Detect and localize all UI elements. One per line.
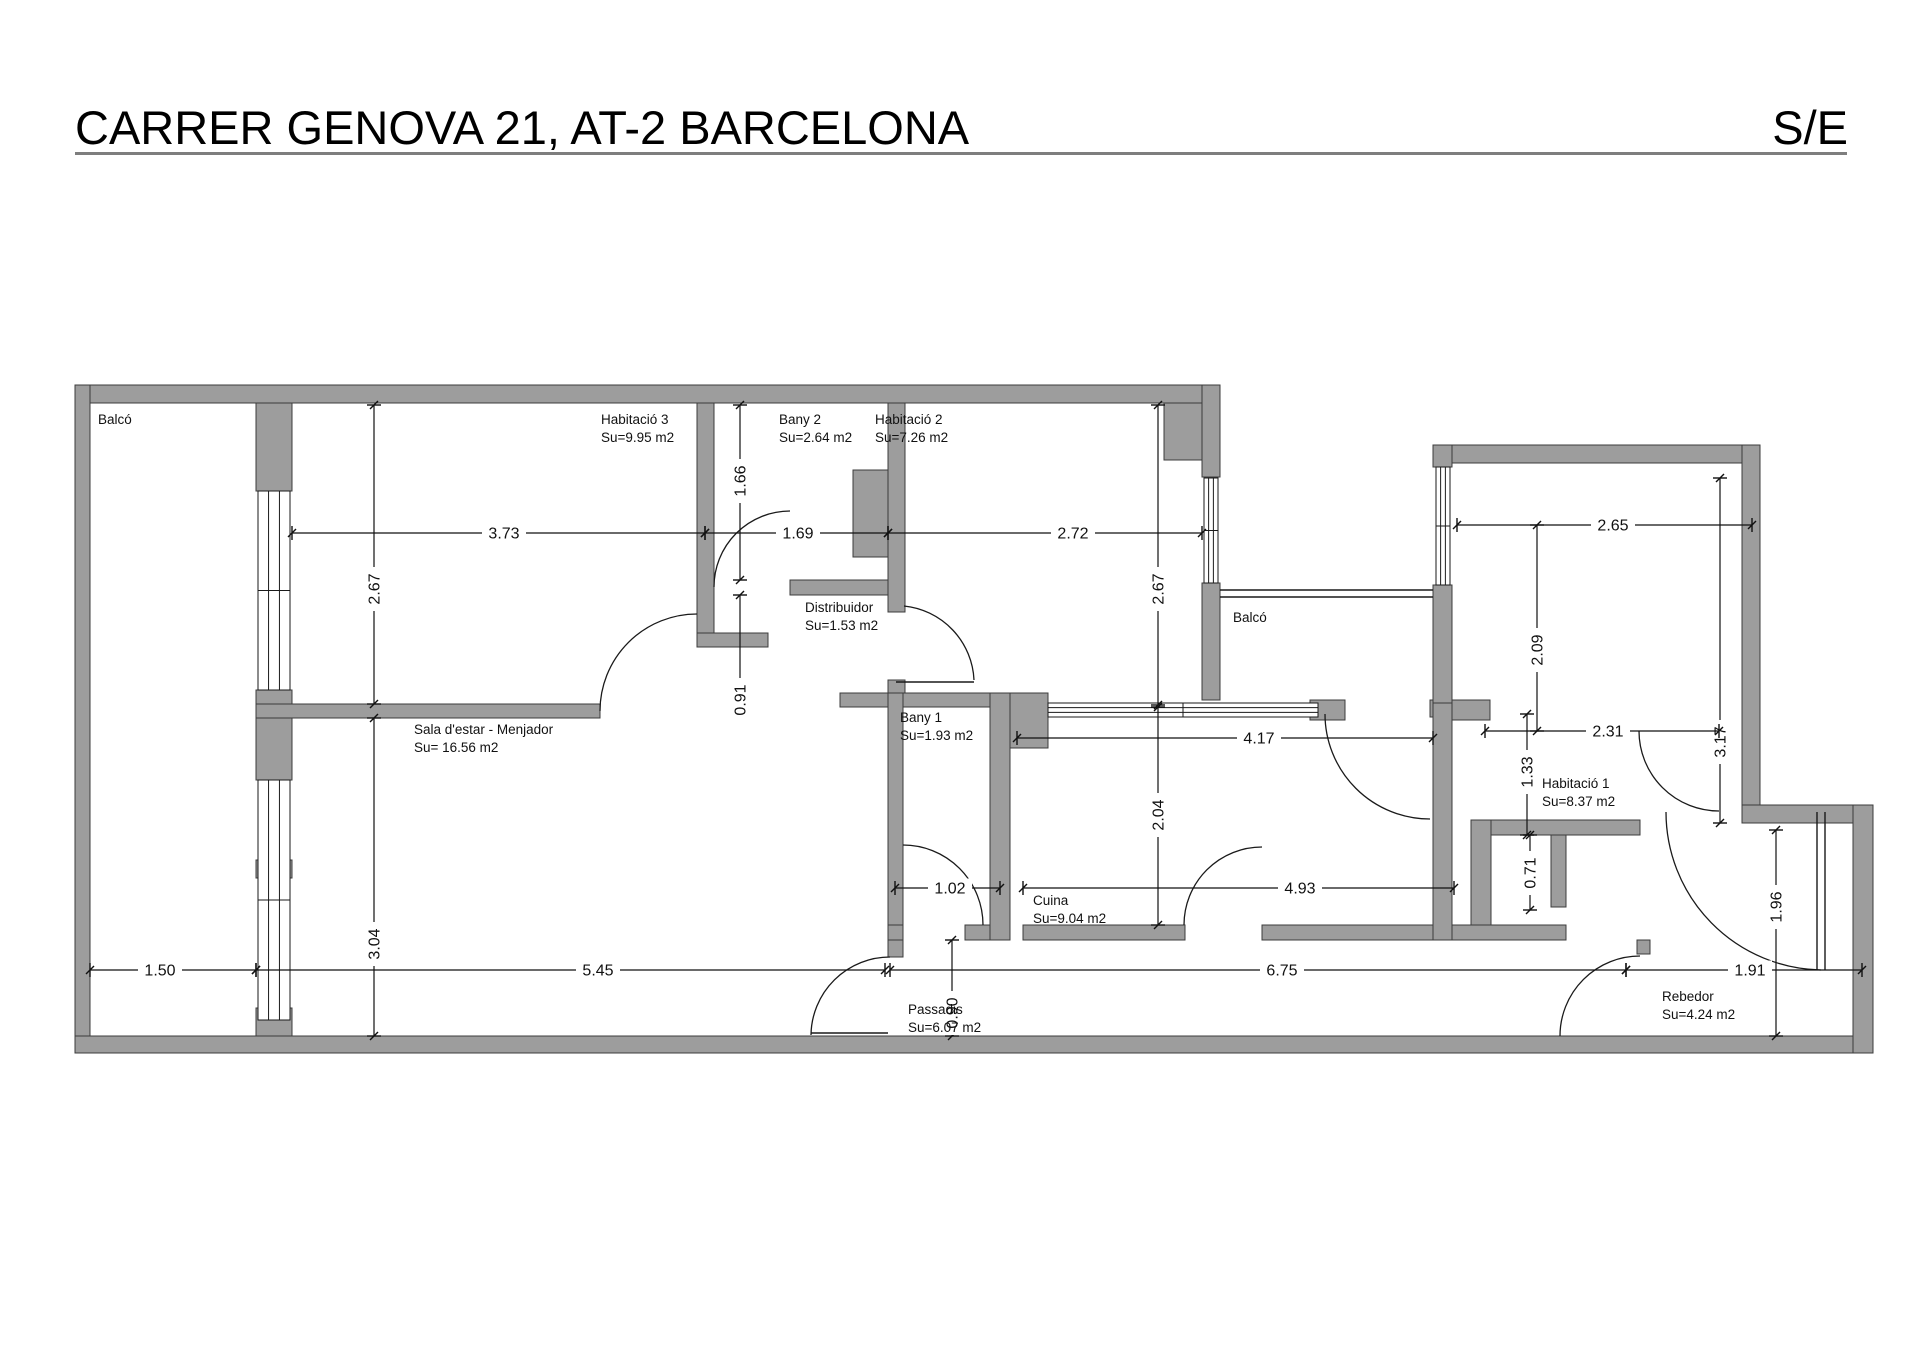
- dimension-label: 2.09: [1530, 634, 1547, 665]
- wall: [888, 925, 903, 940]
- room-area-label: Su=1.53 m2: [805, 618, 878, 633]
- wall: [1853, 805, 1873, 1053]
- room-label: Balcó: [1233, 610, 1267, 625]
- room-label: Habitació 2: [875, 412, 943, 427]
- room-label: Habitació 1: [1542, 776, 1610, 791]
- dimension-label: 3.04: [367, 928, 384, 959]
- room-label: Balcó: [98, 412, 132, 427]
- door-arc: [1184, 847, 1262, 925]
- wall: [853, 470, 888, 557]
- dimension-label: 2.67: [367, 573, 384, 604]
- room-label: Rebedor: [1662, 989, 1714, 1004]
- wall: [990, 693, 1010, 940]
- dimension-label: 2.31: [1592, 724, 1623, 741]
- room-area-label: Su=9.04 m2: [1033, 911, 1106, 926]
- room-label: Sala d'estar - Menjador: [414, 722, 554, 737]
- door-arc: [1666, 812, 1821, 970]
- door-arc: [714, 511, 790, 587]
- room-area-label: Su=2.64 m2: [779, 430, 852, 445]
- wall: [1433, 445, 1760, 463]
- wall: [1202, 385, 1220, 477]
- room-area-label: Su= 16.56 m2: [414, 740, 498, 755]
- room-label: Bany 2: [779, 412, 821, 427]
- dimension-label: 1.91: [1734, 963, 1765, 980]
- dimension-label: 2.04: [1151, 799, 1168, 830]
- wall: [840, 693, 1010, 707]
- room-area-label: Su=6.07 m2: [908, 1020, 981, 1035]
- dimension-label: 1.96: [1769, 891, 1786, 922]
- wall: [1637, 940, 1650, 954]
- wall: [697, 633, 768, 647]
- room-area-label: Su=4.24 m2: [1662, 1007, 1735, 1022]
- room-area-label: Su=7.26 m2: [875, 430, 948, 445]
- room-area-label: Su=9.95 m2: [601, 430, 674, 445]
- room-label: Distribuidor: [805, 600, 874, 615]
- dimension-label: 1.33: [1520, 756, 1537, 787]
- door-arc: [600, 614, 697, 711]
- dimension-label: 4.17: [1243, 731, 1274, 748]
- wall: [965, 925, 990, 940]
- wall: [1742, 445, 1760, 805]
- wall: [1551, 835, 1566, 907]
- door-arc: [811, 957, 890, 1035]
- dimension-label: 3.73: [488, 526, 519, 543]
- wall: [1262, 925, 1454, 940]
- wall: [1433, 585, 1452, 720]
- floor-plan-page: CARRER GENOVA 21, AT-2 BARCELONA S/E 3.7…: [0, 0, 1920, 1357]
- wall: [1476, 820, 1640, 835]
- wall: [1023, 925, 1185, 940]
- dimension-label: 1.02: [934, 881, 965, 898]
- wall: [1202, 583, 1220, 700]
- room-label: Habitació 3: [601, 412, 669, 427]
- dimension-label: 1.66: [733, 465, 750, 496]
- dimension-label: 6.75: [1266, 963, 1297, 980]
- wall: [1164, 403, 1202, 460]
- room-label: Cuina: [1033, 893, 1069, 908]
- room-label: Bany 1: [900, 710, 942, 725]
- door-arc: [904, 606, 974, 680]
- wall: [75, 385, 1220, 403]
- wall: [697, 403, 714, 637]
- dimension-label: 1.69: [782, 526, 813, 543]
- wall: [1471, 820, 1491, 925]
- room-label: Passadis: [908, 1002, 963, 1017]
- dimension-label: 2.72: [1057, 526, 1088, 543]
- wall: [1433, 703, 1452, 940]
- floor-plan-svg: 3.731.692.722.673.041.660.912.672.040.90…: [0, 0, 1920, 1357]
- room-area-label: Su=8.37 m2: [1542, 794, 1615, 809]
- wall: [1433, 445, 1452, 467]
- wall: [1452, 700, 1490, 720]
- dimension-label: 0.71: [1523, 857, 1540, 888]
- door-arc: [1639, 731, 1719, 811]
- dimension-label: 0.91: [733, 684, 750, 715]
- wall: [75, 1036, 1873, 1053]
- wall: [256, 403, 292, 491]
- wall: [75, 385, 90, 1053]
- wall: [1452, 925, 1566, 940]
- dimension-label: 4.93: [1284, 881, 1315, 898]
- dimension-label: 2.65: [1597, 518, 1628, 535]
- dimension-label: 5.45: [582, 963, 613, 980]
- wall: [256, 704, 600, 718]
- dimension-label: 1.50: [144, 963, 175, 980]
- wall: [790, 580, 888, 595]
- room-area-label: Su=1.93 m2: [900, 728, 973, 743]
- dimension-label: 2.67: [1151, 573, 1168, 604]
- door-arc: [1325, 714, 1430, 819]
